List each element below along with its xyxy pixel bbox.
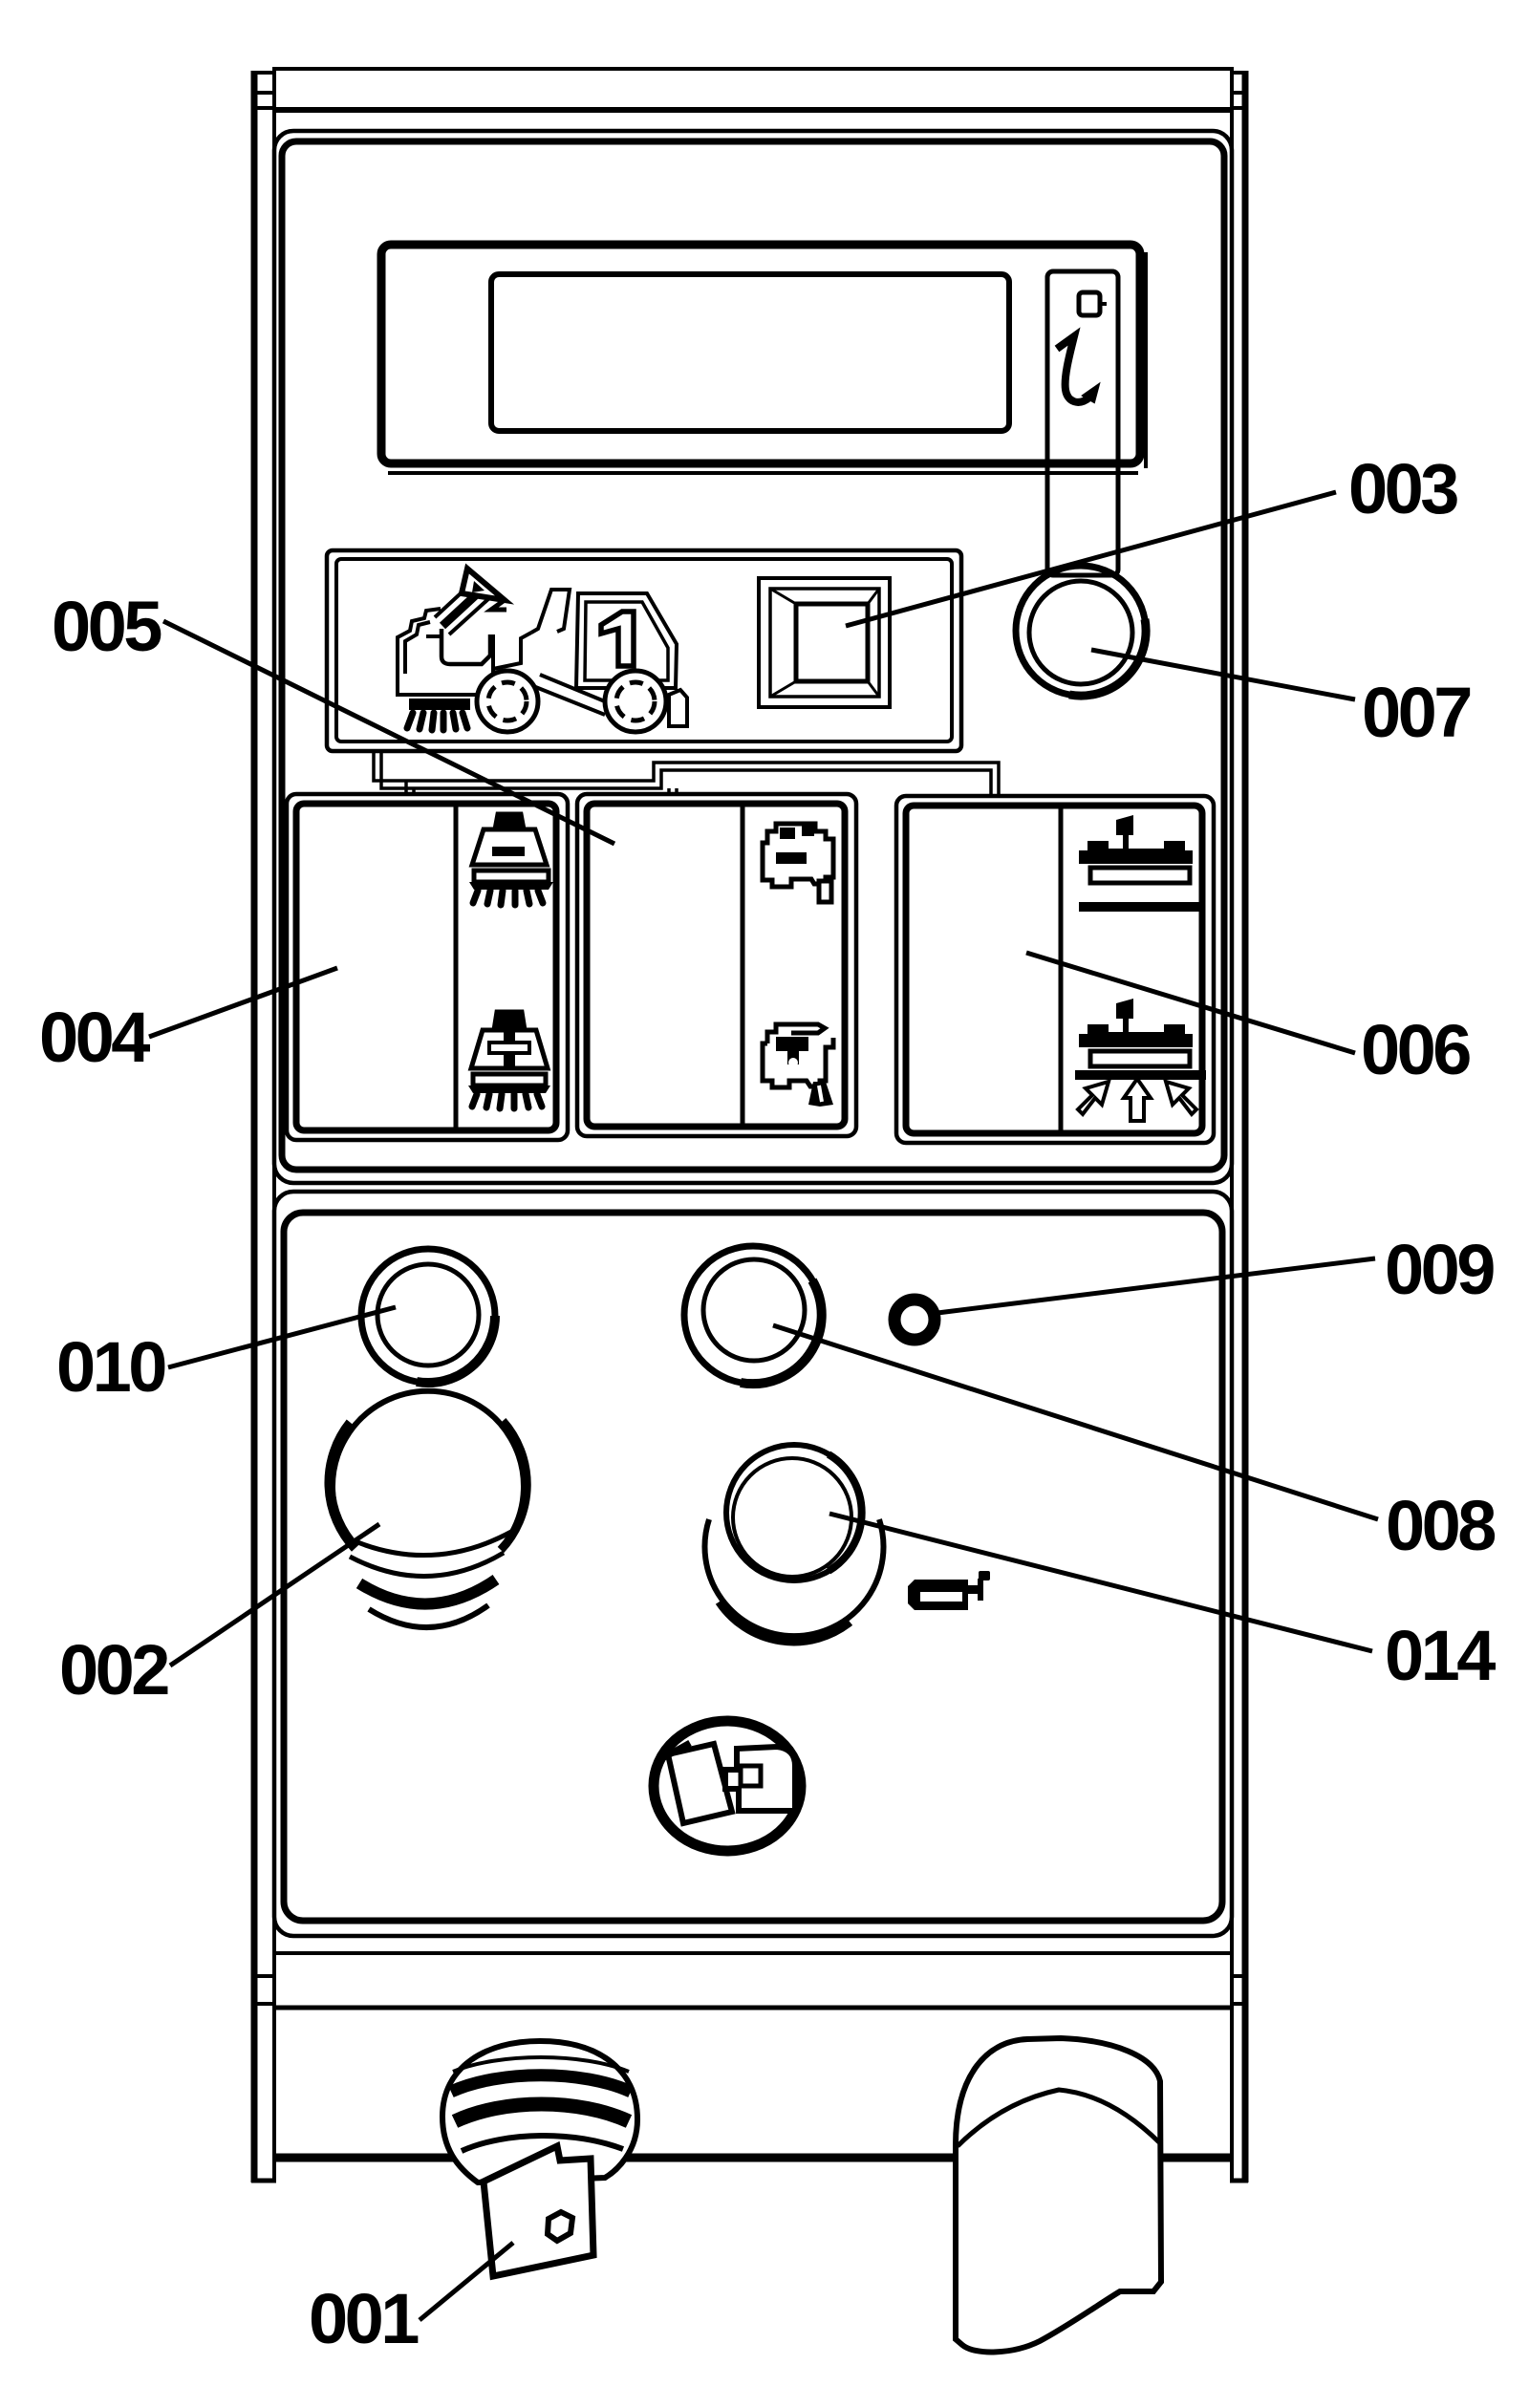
svg-text:006: 006 xyxy=(1361,1010,1470,1089)
svg-text:003: 003 xyxy=(1348,449,1457,528)
svg-text:004: 004 xyxy=(39,998,150,1077)
svg-text:010: 010 xyxy=(56,1327,165,1407)
svg-text:008: 008 xyxy=(1386,1486,1495,1565)
svg-text:002: 002 xyxy=(59,1630,168,1709)
svg-text:007: 007 xyxy=(1362,673,1470,752)
svg-text:005: 005 xyxy=(52,587,162,666)
svg-text:009: 009 xyxy=(1385,1230,1494,1309)
svg-text:001: 001 xyxy=(309,2279,419,2358)
svg-text:014: 014 xyxy=(1385,1616,1496,1695)
